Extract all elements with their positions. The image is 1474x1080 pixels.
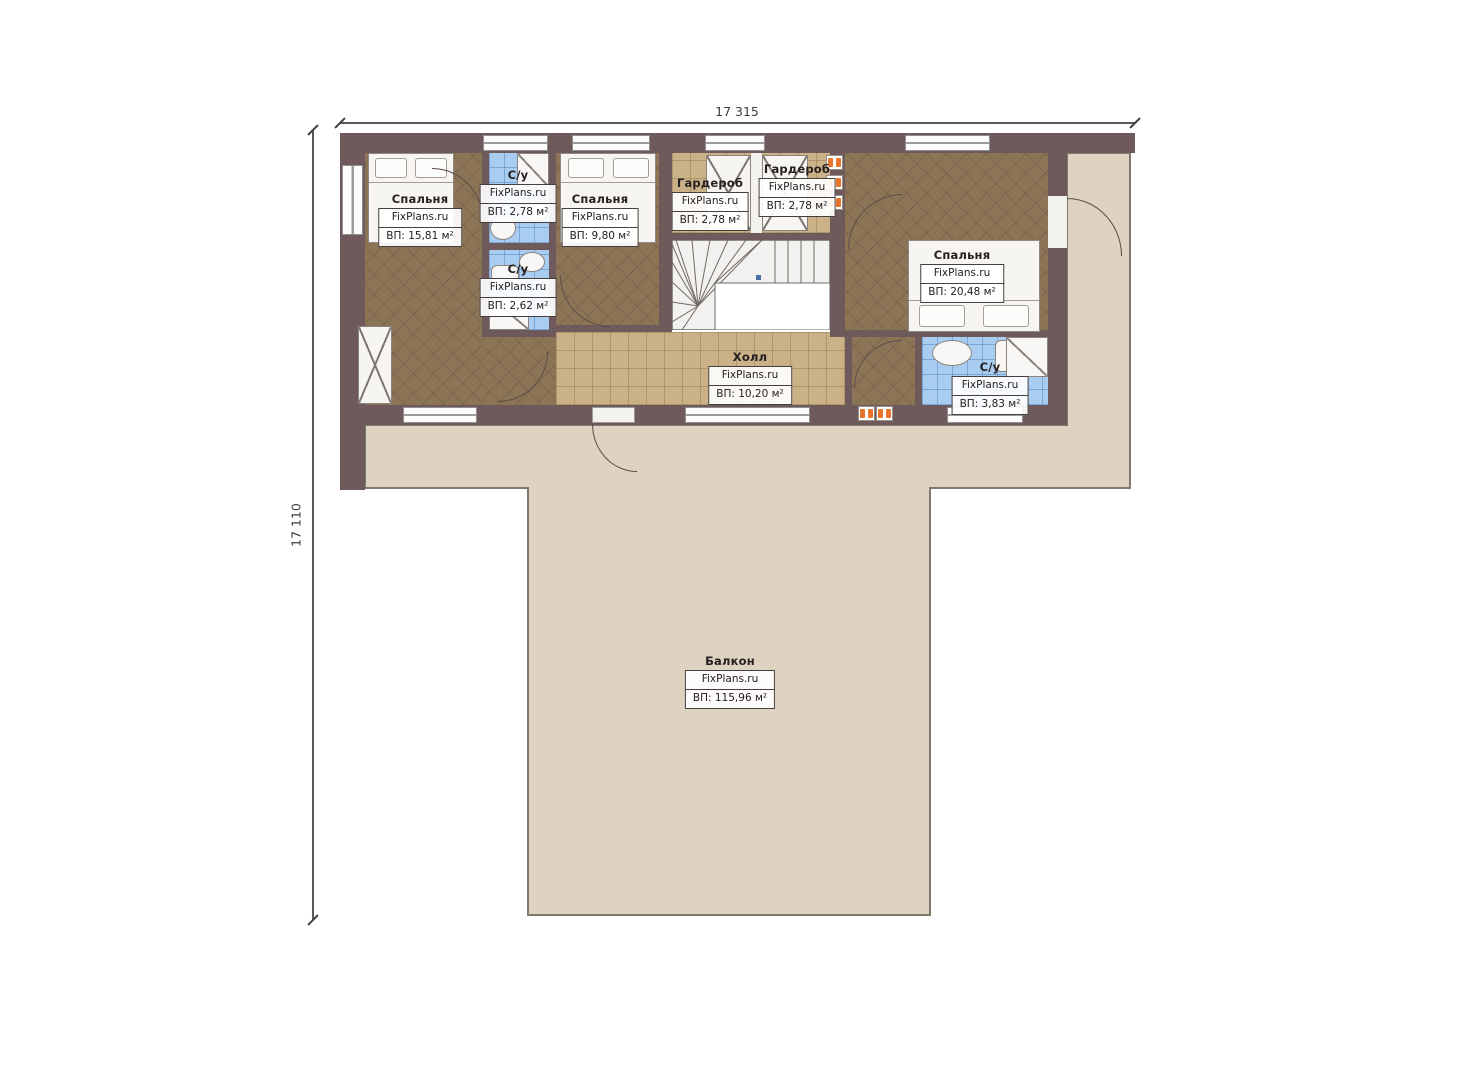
wall-bath-bottom — [482, 330, 556, 337]
area-box: ВП: 115,96 м² — [685, 689, 775, 709]
staircase — [672, 240, 830, 330]
door-opening-bedroom3-balcony — [1048, 196, 1067, 248]
window-bottom-1 — [403, 407, 477, 423]
watermark-box: FixPlans.ru — [952, 376, 1029, 396]
area-box: ВП: 3,83 м² — [952, 395, 1029, 415]
window-top-2 — [572, 135, 650, 151]
pillow — [983, 305, 1029, 327]
window-top-4 — [905, 135, 990, 151]
area-box: ВП: 9,80 м² — [562, 227, 639, 247]
wall-hall-right — [845, 330, 852, 405]
radiator-icon — [876, 406, 893, 421]
room-name: Гардероб — [759, 162, 836, 176]
pillow — [613, 158, 649, 178]
room-label-bedroom-3: Спальня FixPlans.ru ВП: 20,48 м² — [920, 248, 1004, 303]
room-label-balcony: Балкон FixPlans.ru ВП: 115,96 м² — [685, 654, 775, 709]
room-name: С/у — [952, 360, 1029, 374]
room-label-bedroom-2: Спальня FixPlans.ru ВП: 9,80 м² — [562, 192, 639, 247]
window-top-3 — [705, 135, 765, 151]
blanket-line — [561, 182, 655, 183]
area-box: ВП: 2,62 м² — [480, 297, 557, 317]
room-label-hall: Холл FixPlans.ru ВП: 10,20 м² — [708, 350, 792, 405]
window-bottom-2 — [685, 407, 810, 423]
watermark-box: FixPlans.ru — [708, 366, 792, 386]
watermark-box: FixPlans.ru — [685, 670, 775, 690]
wall-bedroom-2-right — [659, 152, 672, 332]
watermark-box: FixPlans.ru — [480, 278, 557, 298]
area-box: ВП: 2,78 м² — [672, 211, 749, 231]
watermark-box: FixPlans.ru — [480, 184, 557, 204]
window-top-1 — [483, 135, 548, 151]
window-left-1 — [342, 165, 363, 235]
watermark-box: FixPlans.ru — [562, 208, 639, 228]
room-label-bedroom-1: Спальня FixPlans.ru ВП: 15,81 м² — [378, 192, 462, 247]
room-label-wardrobe-2: Гардероб FixPlans.ru ВП: 2,78 м² — [759, 162, 836, 217]
wall-wardrobe-bottom — [672, 233, 830, 240]
area-box: ВП: 2,78 м² — [480, 203, 557, 223]
room-name: Спальня — [378, 192, 462, 206]
wall-bedroom-2-bottom — [556, 325, 672, 332]
watermark-box: FixPlans.ru — [672, 192, 749, 212]
wall-bathroom-3-left — [915, 337, 922, 405]
pillow — [919, 305, 965, 327]
wall-right — [1048, 153, 1067, 425]
area-box: ВП: 20,48 м² — [920, 283, 1004, 303]
floor-hall — [556, 332, 845, 405]
wall-bath-divider — [482, 243, 556, 250]
floor-plan-canvas: Спальня FixPlans.ru ВП: 15,81 м² С/у Fix… — [0, 0, 1474, 1080]
area-box: ВП: 15,81 м² — [378, 227, 462, 247]
pillow — [568, 158, 604, 178]
watermark-box: FixPlans.ru — [920, 264, 1004, 284]
room-label-bathroom-1: С/у FixPlans.ru ВП: 2,78 м² — [480, 168, 557, 223]
room-name: Спальня — [562, 192, 639, 206]
room-label-bathroom-2: С/у FixPlans.ru ВП: 2,62 м² — [480, 262, 557, 317]
room-label-bathroom-3: С/у FixPlans.ru ВП: 3,83 м² — [952, 360, 1029, 415]
watermark-box: FixPlans.ru — [378, 208, 462, 228]
room-name: Гардероб — [672, 176, 749, 190]
radiator-icon — [858, 406, 875, 421]
room-name: С/у — [480, 262, 557, 276]
area-box: ВП: 2,78 м² — [759, 197, 836, 217]
door-opening-balcony — [592, 407, 635, 423]
room-name: С/у — [480, 168, 557, 182]
closet-icon — [358, 326, 392, 404]
room-name: Балкон — [685, 654, 775, 668]
room-name: Холл — [708, 350, 792, 364]
area-box: ВП: 10,20 м² — [708, 385, 792, 405]
pillow — [375, 158, 407, 178]
watermark-box: FixPlans.ru — [759, 178, 836, 198]
room-label-wardrobe-1: Гардероб FixPlans.ru ВП: 2,78 м² — [672, 176, 749, 231]
room-name: Спальня — [920, 248, 1004, 262]
